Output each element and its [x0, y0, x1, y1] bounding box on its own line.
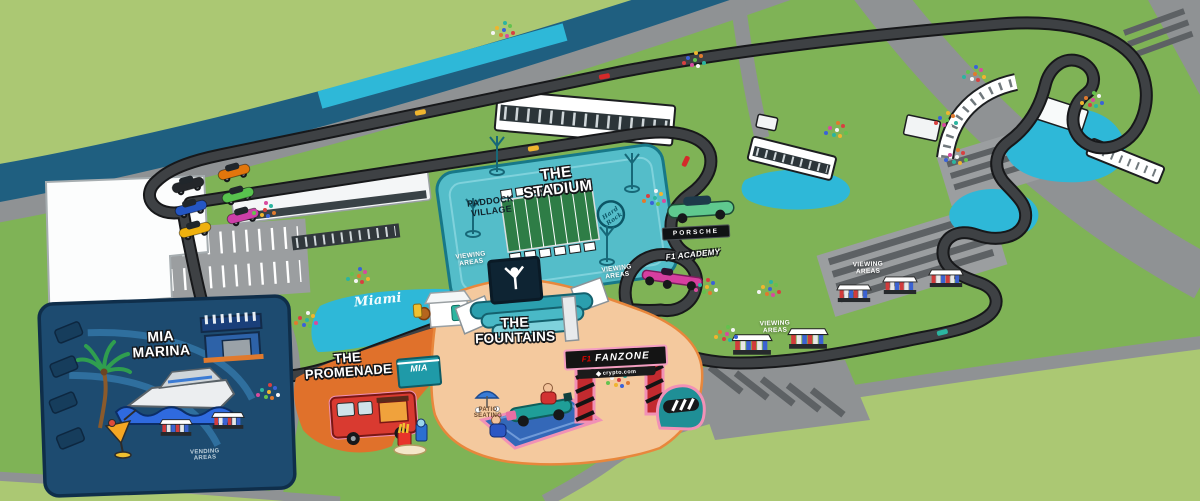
vending-stand-icon — [160, 420, 192, 436]
vending-stand-icon — [212, 413, 244, 429]
helmet-icon — [657, 386, 704, 429]
viewing-stand-icon — [883, 277, 917, 294]
map-illustration — [0, 0, 1200, 501]
trophy-obelisk — [562, 296, 579, 341]
lake-east — [742, 170, 850, 210]
crypto-label: crypto.com — [603, 368, 637, 376]
fanzone-label: FANZONE — [595, 350, 650, 364]
mia-shop — [397, 356, 441, 388]
viewing-stand-icon — [732, 335, 772, 355]
fanzone-sign: F1 FANZONE crypto.com — [563, 344, 668, 379]
f1-logo-icon: F1 — [582, 354, 592, 363]
viewing-stand-icon — [788, 329, 828, 349]
marina-building — [201, 314, 264, 363]
crypto-logo-icon — [596, 371, 602, 377]
venue-map: THE STADIUM PADDOCK VILLAGE VIEWING AREA… — [0, 0, 1200, 501]
viewing-stand-icon — [837, 285, 871, 302]
viewing-stand-icon — [929, 270, 963, 287]
